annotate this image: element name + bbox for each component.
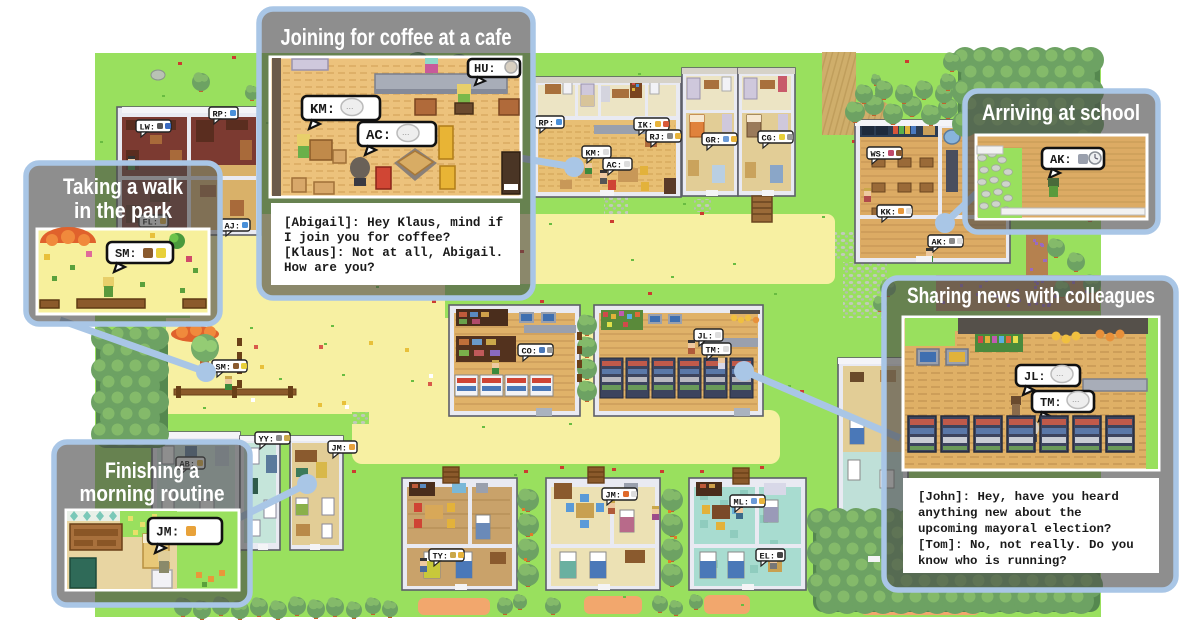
svg-text:JL:: JL: xyxy=(698,331,713,341)
svg-text:CG:: CG: xyxy=(762,133,777,143)
svg-text:[John]: Hey, have you heard: [John]: Hey, have you heard xyxy=(918,490,1119,504)
svg-text:KK:: KK: xyxy=(881,207,896,217)
svg-text:JM:: JM: xyxy=(332,443,347,453)
svg-text:[Abigail]: Hey Klaus, mind if: [Abigail]: Hey Klaus, mind if xyxy=(284,216,503,230)
svg-text:TM:: TM: xyxy=(706,345,721,355)
svg-text:upcoming mayoral election?: upcoming mayoral election? xyxy=(918,522,1111,536)
svg-text:Taking a walk: Taking a walk xyxy=(63,174,184,199)
svg-text:Arriving at school: Arriving at school xyxy=(982,100,1140,125)
svg-text:JL:: JL: xyxy=(1024,370,1046,384)
svg-text:TY:: TY: xyxy=(433,551,448,561)
svg-text:morning routine: morning routine xyxy=(80,481,225,506)
svg-text:SM:: SM: xyxy=(216,362,231,372)
svg-text:Sharing news with colleagues: Sharing news with colleagues xyxy=(907,283,1155,308)
svg-text:YY:: YY: xyxy=(259,434,274,444)
svg-text:AK:: AK: xyxy=(1050,153,1072,167)
svg-text:RP:: RP: xyxy=(539,118,554,128)
svg-text:GR:: GR: xyxy=(706,135,721,145)
svg-text:EL:: EL: xyxy=(760,551,775,561)
svg-text:JM:: JM: xyxy=(606,490,621,500)
svg-text:JM:: JM: xyxy=(156,525,179,540)
svg-text:RJ:: RJ: xyxy=(650,132,665,142)
svg-text:...: ... xyxy=(346,101,354,111)
svg-text:HU:: HU: xyxy=(474,62,496,76)
svg-text:ML:: ML: xyxy=(734,497,749,507)
svg-text:Finishing a: Finishing a xyxy=(105,458,200,483)
svg-text:How are you?: How are you? xyxy=(284,261,375,275)
svg-text:AK:: AK: xyxy=(932,237,947,247)
svg-text:I join you for coffee?: I join you for coffee? xyxy=(284,231,450,245)
svg-text:anything new about the: anything new about the xyxy=(918,506,1082,520)
svg-text:...: ... xyxy=(402,127,410,137)
svg-text:AJ:: AJ: xyxy=(225,221,240,231)
svg-text:SM:: SM: xyxy=(115,247,137,261)
svg-text:CO:: CO: xyxy=(522,346,537,356)
svg-text:LW:: LW: xyxy=(140,122,155,132)
svg-text:[Tom]: No, not really. Do you: [Tom]: No, not really. Do you xyxy=(918,538,1134,552)
svg-text:KM:: KM: xyxy=(586,148,601,158)
svg-text:...: ... xyxy=(1072,394,1080,404)
svg-text:KM:: KM: xyxy=(310,102,335,118)
svg-text:Joining for coffee at a cafe: Joining for coffee at a cafe xyxy=(281,24,512,50)
svg-text:TM:: TM: xyxy=(1040,396,1062,410)
svg-text:in the park: in the park xyxy=(74,198,173,223)
svg-text:AC:: AC: xyxy=(366,128,391,144)
svg-text:WS:: WS: xyxy=(871,149,886,159)
svg-text:IK:: IK: xyxy=(638,120,653,130)
svg-text:...: ... xyxy=(1056,368,1064,378)
svg-text:AC:: AC: xyxy=(607,160,622,170)
svg-text:know who is running?: know who is running? xyxy=(918,554,1067,568)
svg-text:[Klaus]: Not at all, Abigail.: [Klaus]: Not at all, Abigail. xyxy=(284,246,503,260)
svg-text:RP:: RP: xyxy=(213,109,228,119)
